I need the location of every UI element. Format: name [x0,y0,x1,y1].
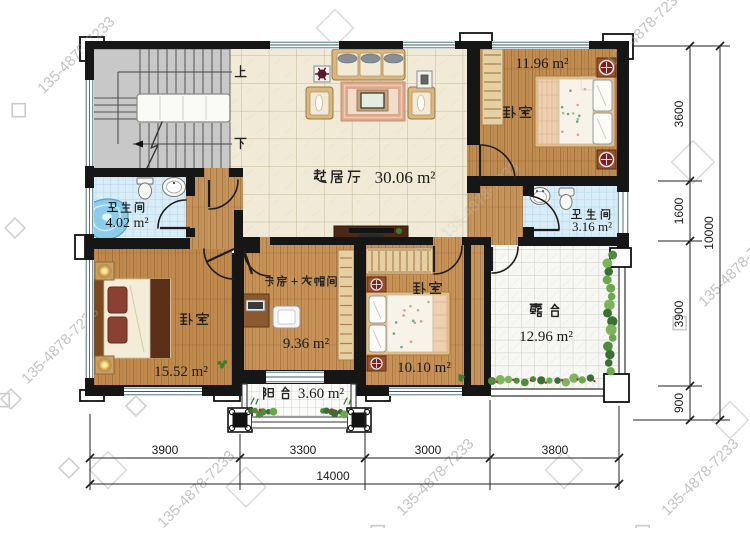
svg-text:1600: 1600 [672,197,686,224]
svg-text:10000: 10000 [702,216,716,250]
svg-text:10.10 m²: 10.10 m² [397,360,451,376]
svg-text:3.16 m²: 3.16 m² [572,219,612,234]
svg-text:3600: 3600 [672,100,686,127]
svg-text:9.36 m²: 9.36 m² [283,336,330,352]
svg-text:11.96 m²: 11.96 m² [515,56,569,72]
svg-text:3300: 3300 [290,443,317,457]
svg-text:15.52 m²: 15.52 m² [154,364,208,380]
svg-text:3800: 3800 [542,443,569,457]
svg-text:30.06 m²: 30.06 m² [375,168,436,187]
svg-text:3000: 3000 [415,443,442,457]
svg-text:3.60 m²: 3.60 m² [298,386,345,402]
svg-text:3900: 3900 [672,300,686,327]
svg-text:+: + [291,274,299,289]
svg-text:12.96 m²: 12.96 m² [519,329,573,345]
svg-text:14000: 14000 [316,469,350,483]
svg-text:900: 900 [672,393,686,413]
svg-text:3900: 3900 [152,443,179,457]
svg-text:4.02 m²: 4.02 m² [105,216,148,231]
